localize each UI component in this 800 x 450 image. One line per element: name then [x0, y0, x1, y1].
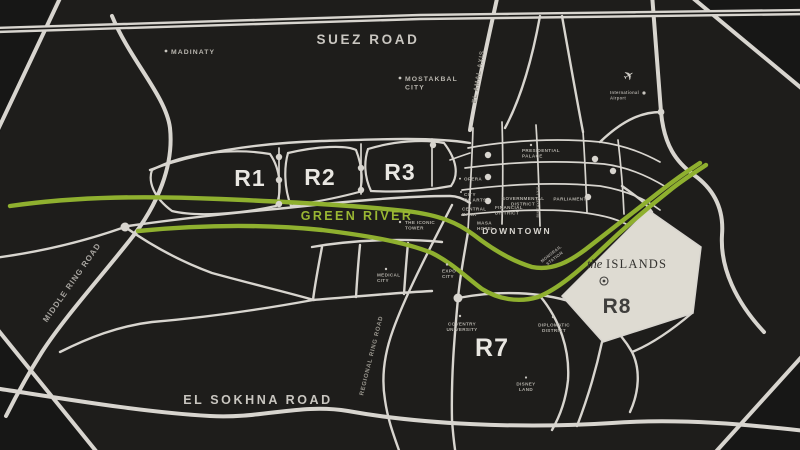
label-madinaty: MADINATY [171, 49, 215, 56]
label-coventry-line2: UNIVERSITY [446, 327, 477, 332]
label-district-r8: R8 [603, 295, 632, 318]
label-islands-the: the [587, 257, 603, 271]
label-city-of-arts-line1: CITY [464, 192, 476, 197]
label-city-of-arts-line2: OF ARTS [464, 198, 486, 203]
label-medical-city-line1: MEDICAL [377, 273, 400, 278]
corner-shading [0, 0, 800, 450]
bullet-coventry [459, 315, 461, 317]
label-regional-ring-road: REGIONAL RING ROAD [359, 315, 385, 396]
bullet-madinaty [165, 50, 168, 53]
bullet-opera [459, 178, 461, 180]
bullet-expo [446, 263, 448, 265]
junction-dot [610, 168, 616, 174]
label-coventry-line1: COVENTRY [448, 322, 476, 327]
label-diplomatic-line1: DIPLOMATIC [538, 323, 570, 328]
label-district-r2: R2 [304, 164, 335, 190]
label-diplomatic-line2: DISTRICT [542, 328, 566, 333]
label-central-bank-line2: BANK [462, 212, 477, 217]
airplane-icon: ✈ [620, 66, 637, 85]
label-airport-line1: International [610, 90, 639, 95]
label-expo-city-line1: EXPO [442, 269, 456, 274]
label-masa-hotel-line1: MASA [477, 221, 492, 226]
road-network [0, 0, 800, 450]
junction-dot [276, 154, 282, 160]
label-opera: OPERA [464, 177, 482, 182]
label-bin-zayed-axis: BIN ZAYED AXIS [536, 186, 540, 217]
label-governmental-line2: DISTRICT [511, 202, 535, 207]
label-mostakbal-line1: MOSTAKBAL [405, 76, 458, 83]
label-expo-city-line2: CITY [442, 274, 454, 279]
bullet-airport [642, 91, 645, 94]
bullet-city-of-arts [460, 191, 462, 193]
label-disney-line1: DISNEY [516, 382, 535, 387]
junction-dot [358, 187, 364, 193]
junction-dot [121, 223, 130, 232]
label-green-river: GREEN RIVER [301, 209, 414, 223]
road-thick-set [0, 0, 800, 450]
label-el-amal-axis: EL AMAL AXIS [471, 50, 486, 104]
label-el-sokhna-road: EL SOKHNA ROAD [183, 393, 333, 407]
label-central-bank-line1: CENTRAL [462, 207, 486, 212]
label-presidential-line2: PALACE [522, 154, 543, 159]
airport-group: ✈ International Airport [610, 66, 639, 100]
junction-dot [276, 201, 282, 207]
suez-road-line [0, 12, 800, 30]
label-masa-hotel-line2: HOTEL [477, 226, 494, 231]
junction-dot [454, 294, 463, 303]
label-iconic-tower-line2: TOWER [405, 226, 424, 231]
label-financial-line2: DISTRICT [495, 211, 519, 216]
bullet-diplomatic [552, 316, 554, 318]
label-suez-road: SUEZ ROAD [317, 32, 420, 47]
capital-map-canvas: SUEZ ROAD EL SOKHNA ROAD MIDDLE RING ROA… [0, 0, 800, 450]
label-medical-city-line2: CITY [377, 278, 389, 283]
label-district-r3: R3 [384, 159, 415, 185]
junction-dot [358, 165, 364, 171]
label-islands-name: ISLANDS [606, 257, 667, 271]
label-district-r7: R7 [475, 334, 509, 362]
label-disney-line2: LAND [519, 387, 533, 392]
label-presidential-line1: PRESIDENTIAL [522, 148, 560, 153]
bullet-presidential [530, 144, 532, 146]
junction-dot [430, 142, 436, 148]
junction-dot [485, 174, 491, 180]
label-mostakbal-line2: CITY [405, 85, 425, 92]
label-governmental-line1: GOVERNMENTAL [502, 196, 545, 201]
label-district-r1: R1 [234, 165, 265, 191]
junction-dot [485, 152, 491, 158]
junction-dot [592, 156, 598, 162]
label-airport-line2: Airport [610, 96, 626, 101]
junction-dot [276, 177, 282, 183]
map-stage: SUEZ ROAD EL SOKHNA ROAD MIDDLE RING ROA… [0, 0, 800, 450]
bullet-disney [525, 376, 527, 378]
junction-dot [658, 109, 665, 116]
label-iconic-tower-line1: THE ICONIC [405, 220, 435, 225]
label-parliament: PARLIAMENT [553, 197, 586, 202]
bullet-mostakbal [399, 77, 402, 80]
bullet-medical [385, 268, 387, 270]
